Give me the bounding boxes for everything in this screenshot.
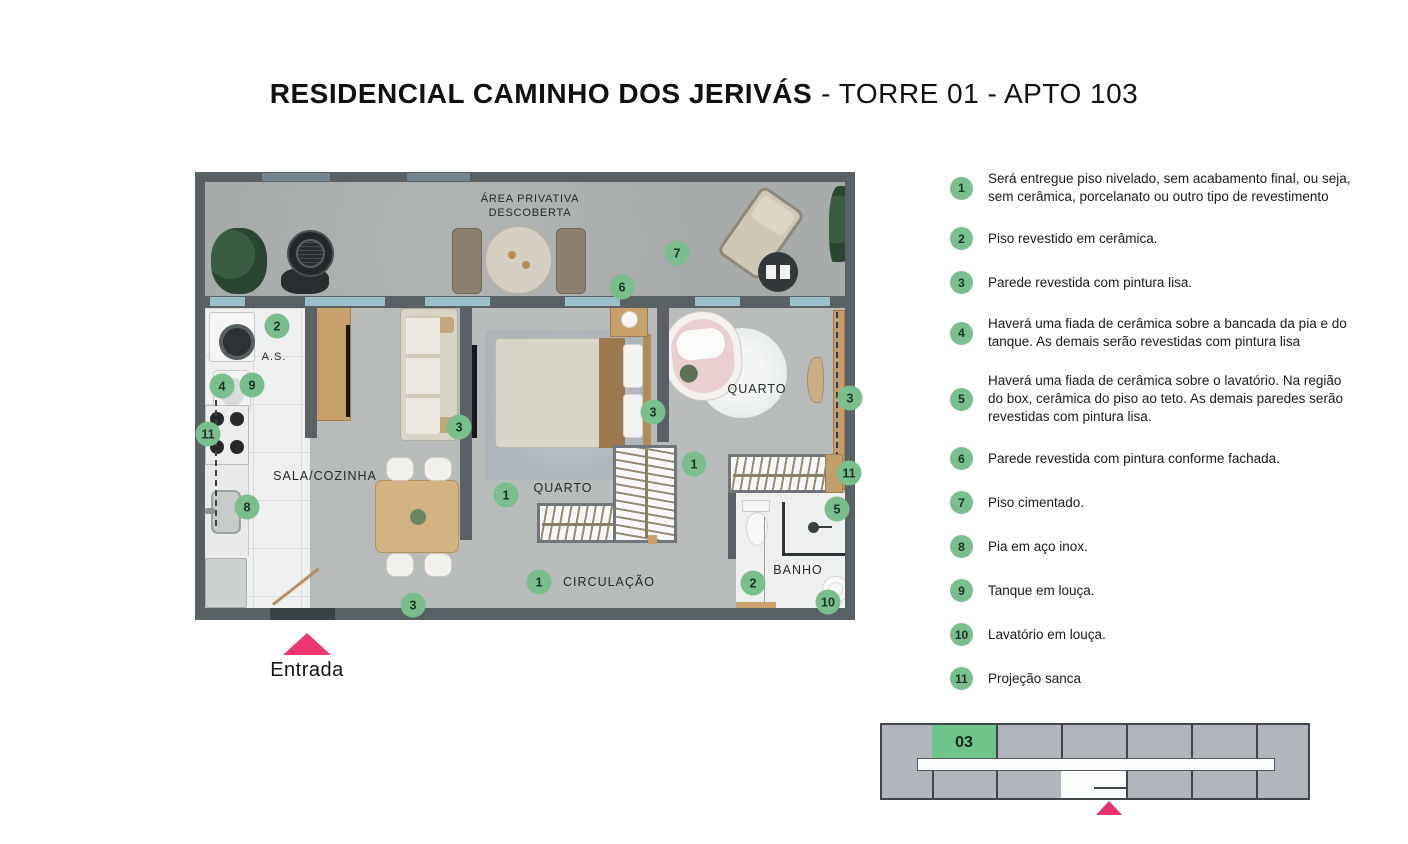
patio-side-table [758, 252, 798, 292]
window [305, 297, 385, 306]
plan-marker: 3 [447, 415, 472, 440]
plan-marker: 11 [196, 422, 221, 447]
floor-plan: ÁREA PRIVATIVA DESCOBERTA A.S. SALA/COZI… [195, 172, 855, 620]
window-top [407, 173, 470, 181]
dining-chair [424, 457, 452, 481]
plan-marker: 7 [665, 241, 690, 266]
legend-item-number: 8 [950, 535, 973, 558]
title-tower-unit: - TORRE 01 - APTO 103 [821, 78, 1138, 109]
legend-item-number: 10 [950, 623, 973, 646]
entrance-arrow-icon [283, 633, 331, 655]
plan-marker: 2 [741, 571, 766, 596]
plan-marker: 1 [527, 570, 552, 595]
keyplan-entrance-arrow-icon [1096, 801, 1122, 815]
service-label: A.S. [262, 351, 287, 363]
legend-item-text: Pia em aço inox. [988, 538, 1360, 556]
legend-item-text: Lavatório em louça. [988, 626, 1360, 644]
tv-living [346, 325, 350, 417]
finish-legend: 1 Será entregue piso nivelado, sem acaba… [950, 170, 1380, 711]
legend-item: 10 Lavatório em louça. [950, 623, 1380, 646]
wall-patio-interior [195, 296, 855, 308]
legend-item-text: Tanque em louça. [988, 582, 1360, 600]
legend-item-number: 2 [950, 227, 973, 250]
legend-item-number: 9 [950, 579, 973, 602]
patio-plant [211, 228, 267, 294]
plan-marker: 3 [401, 593, 426, 618]
keyplan-highlighted-unit: 03 [932, 725, 996, 761]
bedroom1-label: QUARTO [533, 481, 592, 495]
table-decor [508, 251, 516, 259]
plan-marker: 2 [265, 314, 290, 339]
entrance-label: Entrada [270, 659, 344, 682]
dining-table [375, 480, 459, 553]
door-jamb [648, 535, 657, 544]
apartment-plan-page: RESIDENCIAL CAMINHO DOS JERIVÁS- TORRE 0… [0, 0, 1408, 844]
legend-item-text: Projeção sanca [988, 670, 1360, 688]
legend-item-number: 1 [950, 177, 973, 200]
legend-item: 3 Parede revestida com pintura lisa. [950, 271, 1380, 294]
legend-item: 5 Haverá uma fiada de cerâmica sobre o l… [950, 372, 1380, 426]
legend-item-text: Piso cimentado. [988, 494, 1360, 512]
bath-label: BANHO [773, 563, 822, 577]
legend-item-text: Parede revestida com pintura lisa. [988, 274, 1360, 292]
table-decor [522, 261, 530, 269]
legend-item: 1 Será entregue piso nivelado, sem acaba… [950, 170, 1380, 206]
plan-marker: 3 [838, 386, 863, 411]
barbecue-grill [287, 230, 334, 277]
patio-label: ÁREA PRIVATIVA DESCOBERTA [481, 192, 580, 220]
legend-item-text: Piso revestido em cerâmica. [988, 230, 1360, 248]
window [695, 297, 740, 306]
legend-item: 8 Pia em aço inox. [950, 535, 1380, 558]
plan-marker: 5 [825, 497, 850, 522]
legend-item-number: 5 [950, 388, 973, 411]
plan-marker: 11 [837, 461, 862, 486]
hall-label: CIRCULAÇÃO [563, 575, 655, 589]
living-label: SALA/COZINHA [273, 469, 377, 483]
window-top [262, 173, 330, 181]
legend-item-number: 6 [950, 447, 973, 470]
legend-item: 7 Piso cimentado. [950, 491, 1380, 514]
keyplan-entry-line [1094, 787, 1127, 789]
dining-chair [386, 457, 414, 481]
entry-opening [270, 608, 335, 620]
plan-marker: 9 [240, 373, 265, 398]
plan-marker: 3 [641, 400, 666, 425]
wall-left [195, 172, 205, 620]
window [790, 297, 830, 306]
title-project-name: RESIDENCIAL CAMINHO DOS JERIVÁS [270, 78, 812, 109]
plan-marker: 8 [235, 495, 260, 520]
bed-headboard [643, 334, 651, 452]
legend-item: 2 Piso revestido em cerâmica. [950, 227, 1380, 250]
window [565, 297, 620, 306]
legend-item: 6 Parede revestida com pintura conforme … [950, 447, 1380, 470]
legend-item-text: Será entregue piso nivelado, sem acabame… [988, 170, 1360, 206]
window [210, 297, 245, 306]
tv-bedroom1 [472, 345, 477, 438]
shower-arm [818, 526, 832, 528]
wall-service [305, 308, 317, 438]
legend-item-text: Parede revestida com pintura conforme fa… [988, 450, 1360, 468]
dining-chair [386, 553, 414, 577]
table-lamp [621, 311, 638, 328]
bed-pillow [623, 394, 643, 438]
legend-item: 11 Projeção sanca [950, 667, 1380, 690]
bedroom2-closet [728, 454, 828, 493]
washing-machine [209, 312, 255, 362]
window [425, 297, 490, 306]
bedroom2-label: QUARTO [727, 382, 786, 396]
bedroom1-closet-vertical [613, 445, 677, 543]
legend-item-number: 3 [950, 271, 973, 294]
keyplan-entry-gap [1061, 771, 1126, 798]
keyplan-corridor [917, 758, 1275, 771]
bed-pillow [623, 344, 643, 388]
plan-marker: 4 [210, 374, 235, 399]
legend-item: 4 Haverá uma fiada de cerâmica sobre a b… [950, 315, 1380, 351]
legend-item-text: Haverá uma fiada de cerâmica sobre a ban… [988, 315, 1360, 351]
patio-bench-right [556, 228, 586, 294]
plan-marker: 1 [494, 483, 519, 508]
shower-glass [764, 517, 765, 605]
plan-marker: 6 [610, 275, 635, 300]
patio-bench-left [452, 228, 482, 294]
wall-bathroom-left [728, 493, 736, 559]
patio-table [485, 226, 552, 294]
legend-item-number: 7 [950, 491, 973, 514]
refrigerator [205, 558, 247, 608]
plan-marker: 1 [682, 452, 707, 477]
desk-chair [807, 357, 824, 403]
legend-item: 9 Tanque em louça. [950, 579, 1380, 602]
building-key-plan: 03 [880, 723, 1310, 800]
legend-item-text: Haverá uma fiada de cerâmica sobre o lav… [988, 372, 1360, 426]
dining-chair [424, 553, 452, 577]
page-title: RESIDENCIAL CAMINHO DOS JERIVÁS- TORRE 0… [0, 78, 1408, 110]
bed-throw [599, 338, 625, 448]
toilet-tank [742, 500, 770, 512]
plan-marker: 10 [816, 590, 841, 615]
sanca-projection-line [215, 400, 217, 526]
legend-item-number: 4 [950, 322, 973, 345]
legend-item-number: 11 [950, 667, 973, 690]
